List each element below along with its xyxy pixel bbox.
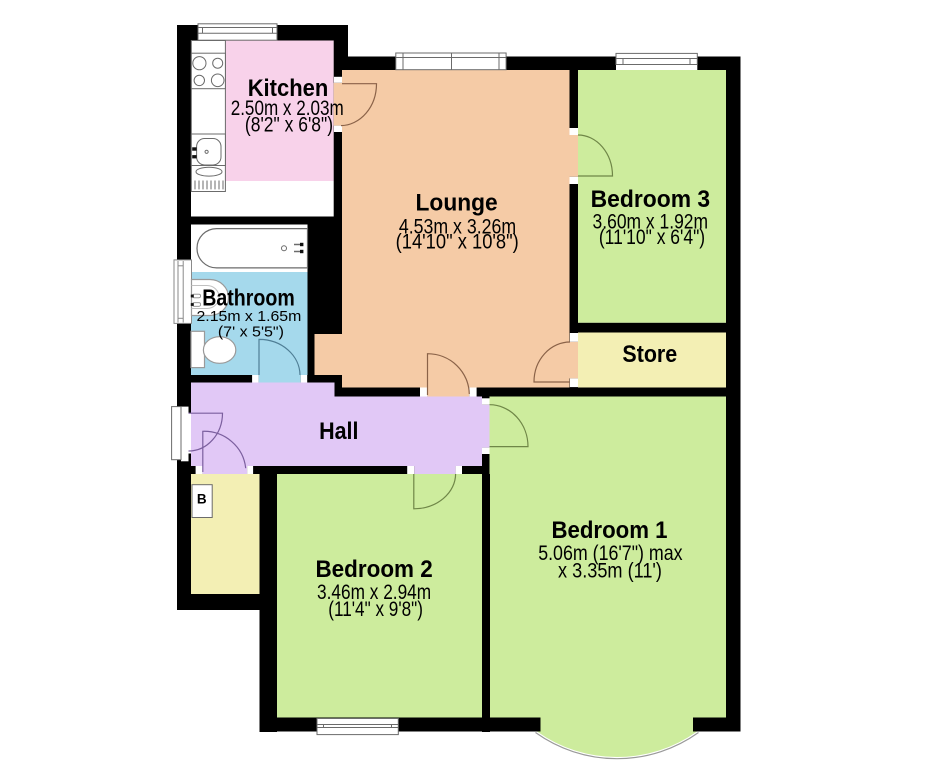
- svg-text:Bedroom 2: Bedroom 2: [315, 556, 432, 583]
- svg-text:(11'4" x 9'8"): (11'4" x 9'8"): [328, 598, 423, 621]
- svg-text:B: B: [197, 492, 207, 507]
- svg-text:x 3.35m (11'): x 3.35m (11'): [558, 560, 662, 583]
- svg-text:Bedroom 1: Bedroom 1: [551, 517, 667, 544]
- svg-text:Bedroom 3: Bedroom 3: [591, 186, 711, 213]
- svg-text:Hall: Hall: [319, 418, 358, 445]
- svg-text:Bathroom: Bathroom: [202, 285, 295, 311]
- svg-text:(7' x 5'5"): (7' x 5'5"): [218, 324, 284, 341]
- svg-text:(8'2" x 6'8"): (8'2" x 6'8"): [245, 114, 333, 137]
- svg-text:Store: Store: [622, 341, 677, 368]
- svg-text:Lounge: Lounge: [416, 190, 498, 217]
- svg-text:(14'10" x 10'8"): (14'10" x 10'8"): [396, 231, 519, 254]
- svg-text:(11'10" x 6'4"): (11'10" x 6'4"): [599, 226, 705, 249]
- svg-text:2.15m x 1.65m: 2.15m x 1.65m: [197, 308, 302, 325]
